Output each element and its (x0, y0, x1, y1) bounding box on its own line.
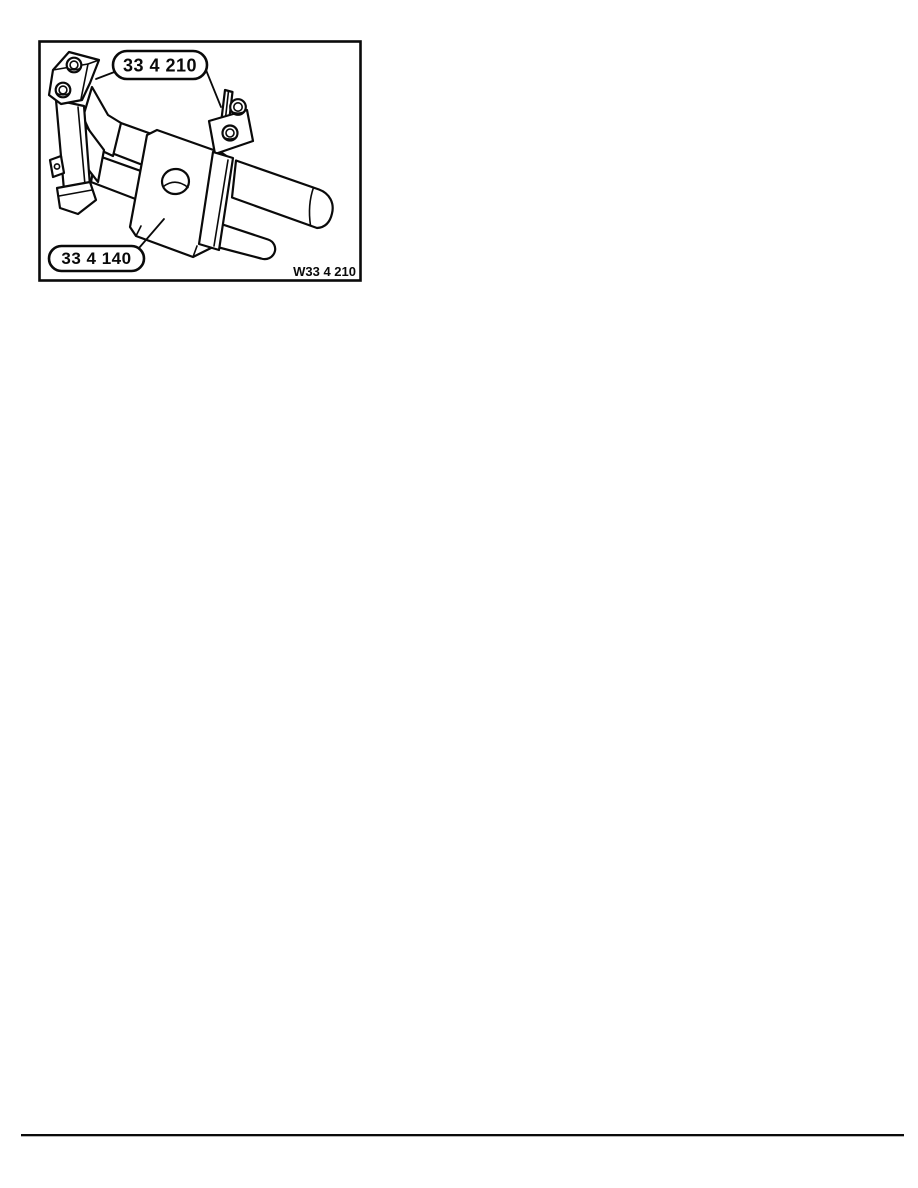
callout-bottom-label: 33 4 140 (61, 249, 131, 268)
footer-divider (21, 1134, 904, 1136)
figure-code-label: W33 4 210 (293, 264, 356, 279)
callout-bottom: 33 4 140 (49, 246, 144, 271)
socket-bolt (67, 58, 82, 73)
callout-top-label: 33 4 210 (123, 56, 197, 76)
socket-bolt (56, 83, 71, 98)
tool-illustration-canvas: 33 4 210 33 4 140 W33 4 210 (0, 0, 918, 1188)
manual-page: 33 4 210 33 4 140 W33 4 210 (0, 0, 918, 1188)
socket-bolt (230, 99, 246, 115)
callout-top: 33 4 210 (113, 51, 207, 79)
socket-bolt (223, 126, 238, 141)
left-arm-side-tab (50, 156, 64, 177)
